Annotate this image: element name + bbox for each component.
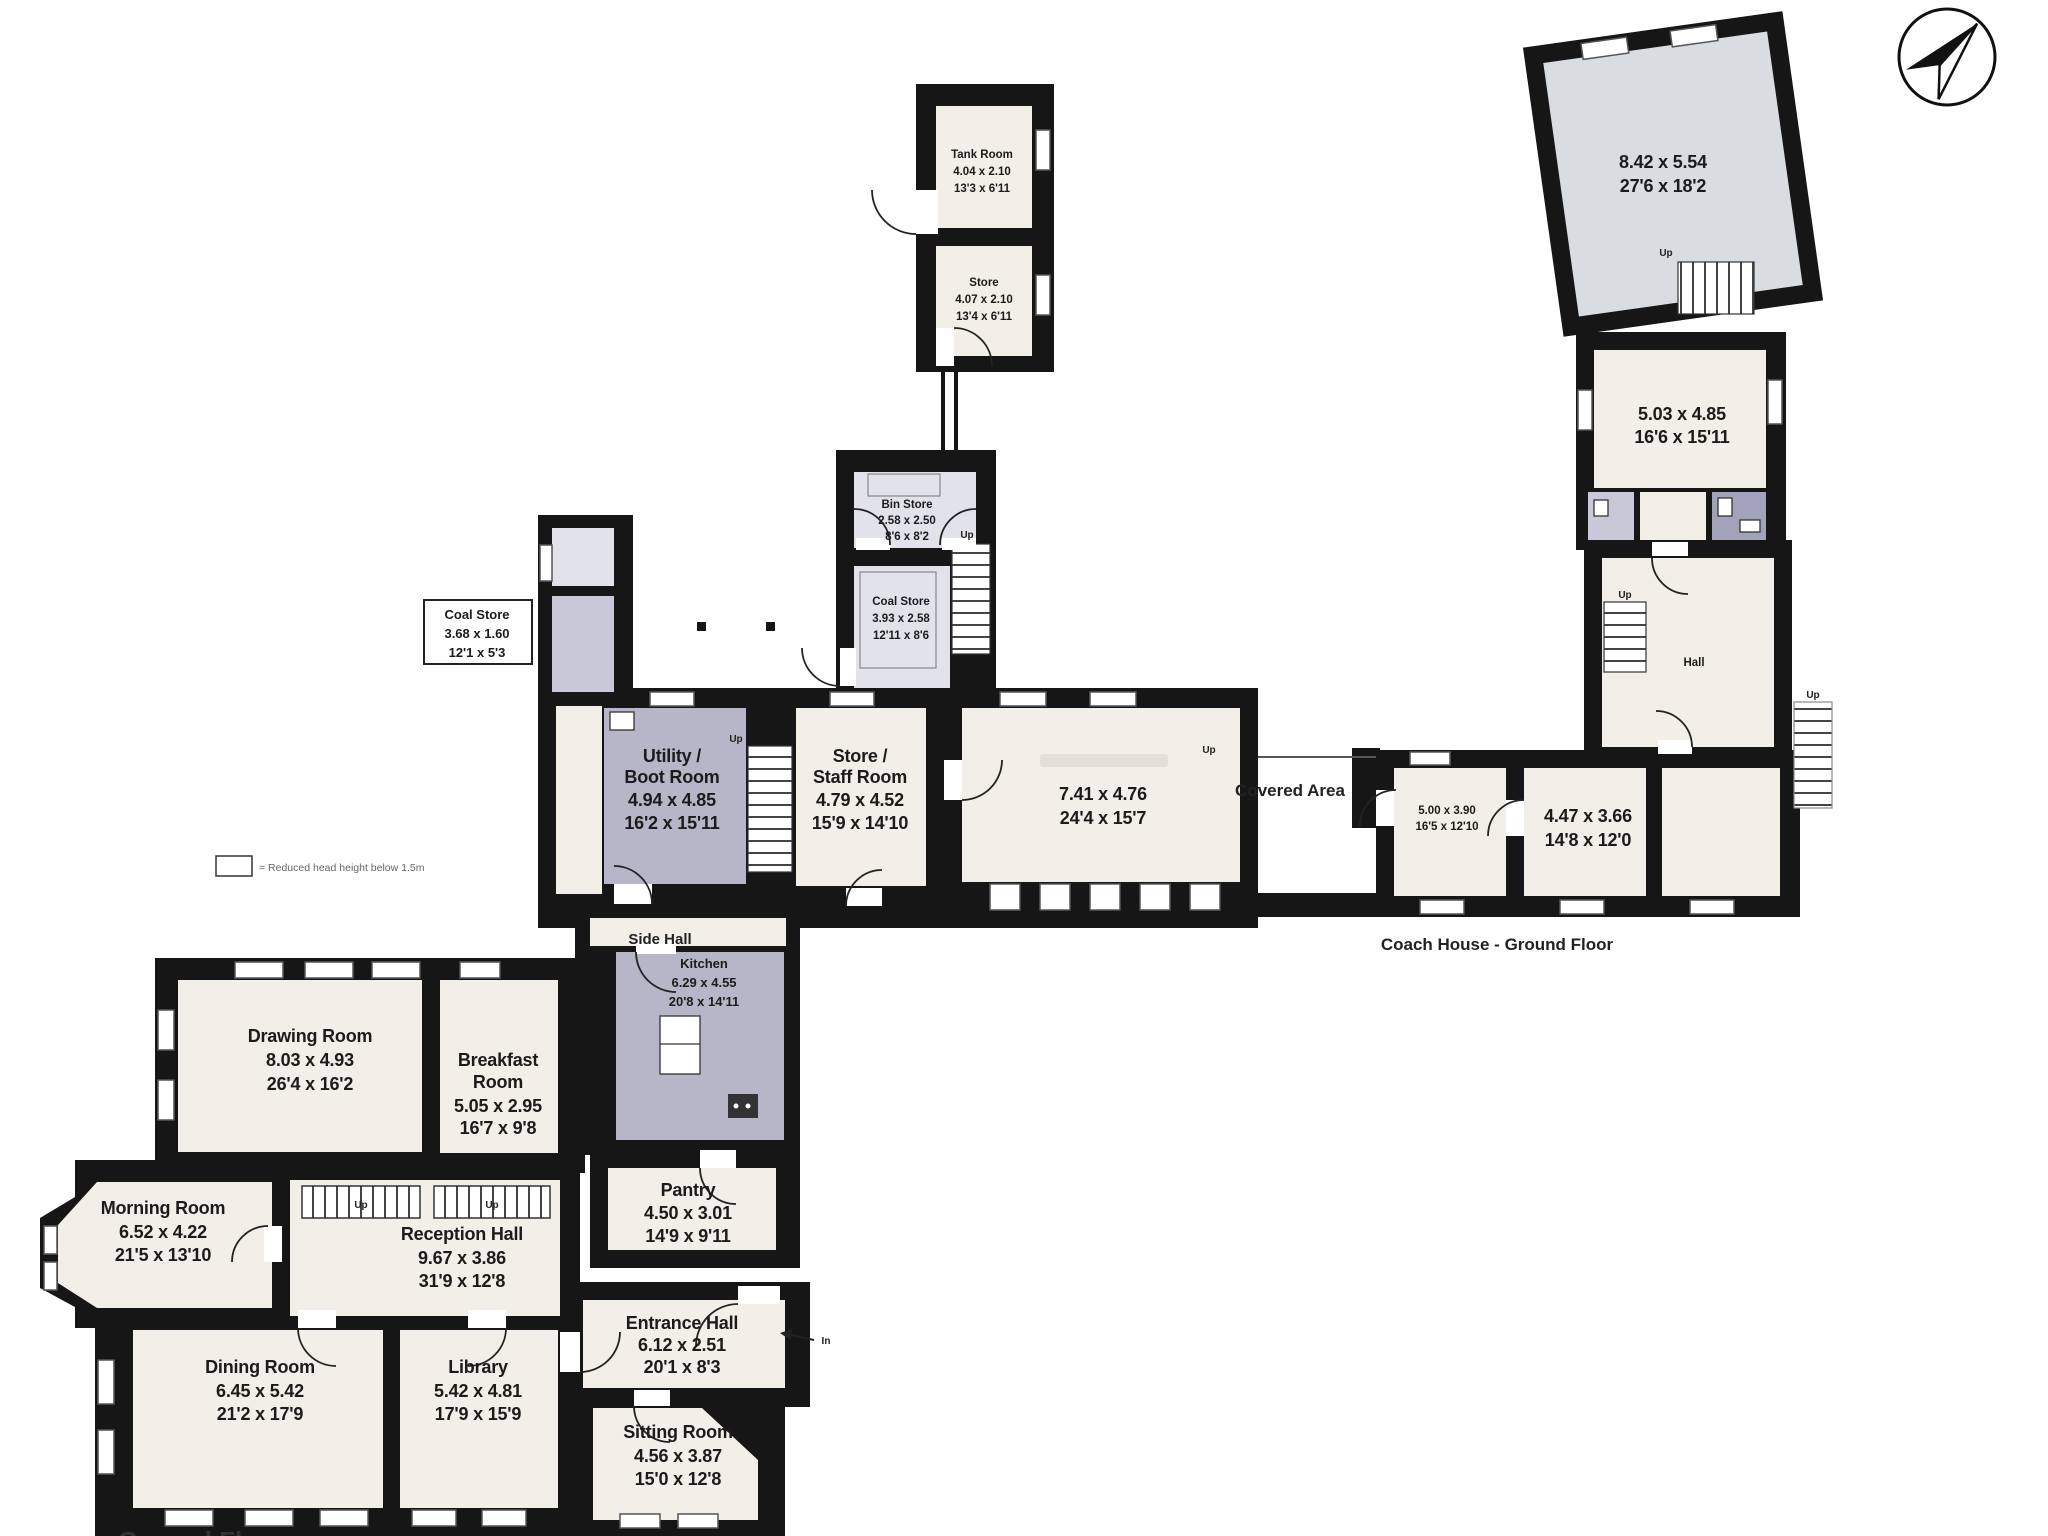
up-label-coal-stairs: Up	[960, 530, 973, 541]
room-dim-imperial: 21'5 x 13'10	[115, 1245, 211, 1265]
stairs-service	[748, 746, 792, 872]
room-dim-metric-coach-mid: 5.03 x 4.85	[1638, 404, 1726, 424]
room-dim-metric: 5.05 x 2.95	[454, 1096, 542, 1116]
compass-north-arrow	[1899, 9, 1995, 105]
door-coal-left	[802, 648, 856, 686]
ground-floor-caption: Ground Floor	[118, 1526, 284, 1536]
room-dim-metric: 4.79 x 4.52	[816, 790, 904, 810]
room-wing-wc	[552, 596, 614, 692]
room-dim-metric-coach-big: 8.42 x 5.54	[1619, 152, 1707, 172]
up-label-reception-stairs-right: Up	[485, 1200, 498, 1211]
room-wing-store	[552, 528, 614, 586]
wall-post-right	[766, 622, 775, 631]
room-label-reception-hall: Reception Hall	[401, 1224, 523, 1244]
room-dim-imperial: 21'2 x 17'9	[217, 1404, 304, 1424]
in-label: In	[822, 1336, 831, 1347]
room-label-store-staff-2: Staff Room	[813, 767, 907, 787]
stairs-coach-external	[1794, 702, 1832, 808]
room-coach-big	[1543, 32, 1802, 317]
room-label-utility-boot-2: Boot Room	[624, 767, 719, 787]
room-dim-metric: 6.45 x 5.42	[216, 1381, 304, 1401]
room-dim-imperial: 20'8 x 14'11	[669, 994, 740, 1009]
door-tank-room	[872, 190, 938, 234]
room-label-tank-store: Store	[969, 277, 998, 289]
room-label-pantry: Pantry	[661, 1180, 716, 1200]
room-coach-lobby	[1640, 492, 1706, 540]
room-dim-metric: 3.68 x 1.60	[444, 626, 509, 641]
room-label-coal-store: Coal Store	[872, 596, 930, 608]
stairs-coach-upper	[1678, 262, 1754, 314]
room-dim-imperial: 13'4 x 6'11	[956, 311, 1013, 323]
coach-house-caption: Coach House - Ground Floor	[1381, 935, 1614, 954]
kitchen-island	[660, 1016, 700, 1074]
kitchen-stove	[728, 1094, 758, 1118]
room-dim-imperial: 8'6 x 8'2	[885, 531, 929, 543]
room-dim-imperial: 15'9 x 14'10	[812, 813, 908, 833]
room-dim-metric: 4.50 x 3.01	[644, 1203, 732, 1223]
room-dim-metric: 9.67 x 3.86	[418, 1248, 506, 1268]
up-label-coach-upper-stairs: Up	[1659, 248, 1672, 259]
room-dim-imperial: 16'7 x 9'8	[460, 1118, 537, 1138]
room-dim-metric: 6.52 x 4.22	[119, 1222, 207, 1242]
room-dim-metric: 6.29 x 4.55	[671, 975, 736, 990]
hall-label: Hall	[1683, 657, 1704, 669]
room-dim-imperial-coach-mid: 16'6 x 15'11	[1634, 427, 1729, 447]
room-dim-metric: 8.03 x 4.93	[266, 1050, 354, 1070]
floorplan-canvas: Drawing Room 8.03 x 4.93 26'4 x 16'2 Bre…	[0, 0, 2048, 1536]
room-dim-imperial: 13'3 x 6'11	[954, 183, 1011, 195]
room-label-entrance-hall: Entrance Hall	[626, 1313, 738, 1333]
up-label-big-room: Up	[1202, 745, 1215, 756]
room-dim-metric: 3.93 x 2.58	[872, 613, 930, 625]
room-label-utility-boot: Utility /	[643, 746, 701, 766]
bathroom-sink	[1740, 520, 1760, 532]
room-label-breakfast-room: Breakfast	[458, 1050, 538, 1070]
room-label-bin-store: Bin Store	[881, 499, 932, 511]
covered-area-label: Covered Area	[1235, 781, 1345, 800]
room-dim-imperial-coach-big: 27'6 x 18'2	[1620, 176, 1707, 196]
room-label-sitting-room: Sitting Room	[623, 1422, 733, 1442]
legend-label: = Reduced head height below 1.5m	[259, 862, 425, 874]
room-dim-imperial: 15'0 x 12'8	[635, 1469, 722, 1489]
utility-sink	[610, 712, 634, 730]
room-dim-metric-coach-right: 4.47 x 3.66	[1544, 806, 1632, 826]
wall-post-left	[697, 622, 706, 631]
up-label-coach-hall-stairs: Up	[1618, 590, 1631, 601]
room-dim-metric: 4.04 x 2.10	[953, 166, 1011, 178]
room-coach-store	[1662, 768, 1780, 896]
up-label-reception-stairs-left: Up	[354, 1200, 367, 1211]
room-side-hall-upper	[556, 706, 602, 894]
room-dim-metric: 2.58 x 2.50	[878, 515, 936, 527]
up-label-coach-external-stairs: Up	[1806, 690, 1819, 701]
room-label-dining-room: Dining Room	[205, 1357, 315, 1377]
room-label-breakfast-room-2: Room	[473, 1072, 523, 1092]
room-label-kitchen: Kitchen	[680, 956, 728, 971]
room-dim-imperial: 31'9 x 12'8	[419, 1271, 506, 1291]
room-dim-imperial: 17'9 x 15'9	[435, 1404, 522, 1424]
erased-room-name-smudge	[1040, 754, 1168, 767]
room-dim-metric: 4.94 x 4.85	[628, 790, 716, 810]
room-dim-imperial-big-room: 24'4 x 15'7	[1060, 808, 1147, 828]
room-dim-metric: 4.56 x 3.87	[634, 1446, 722, 1466]
stairs-coal	[952, 544, 990, 654]
room-dim-imperial: 12'1 x 5'3	[449, 645, 506, 660]
room-dim-imperial: 16'2 x 15'11	[624, 813, 719, 833]
floorplan-page: Drawing Room 8.03 x 4.93 26'4 x 16'2 Bre…	[0, 0, 2048, 1536]
room-label-tank-room: Tank Room	[951, 149, 1013, 161]
room-dim-imperial: 26'4 x 16'2	[267, 1074, 354, 1094]
wc-toilet	[1594, 500, 1608, 516]
bathroom-toilet	[1718, 498, 1732, 516]
room-dim-imperial: 20'1 x 8'3	[644, 1357, 721, 1377]
room-label-coal-callout: Coal Store	[444, 607, 509, 622]
room-dim-imperial-coach-right: 14'8 x 12'0	[1545, 830, 1632, 850]
room-dim-metric-coach-small: 5.00 x 3.90	[1418, 805, 1476, 817]
room-dim-imperial: 12'11 x 8'6	[873, 630, 929, 642]
room-dim-metric: 5.42 x 4.81	[434, 1381, 522, 1401]
room-dim-metric-big-room: 7.41 x 4.76	[1059, 784, 1147, 804]
side-hall-label: Side Hall	[628, 931, 691, 948]
legend-swatch	[216, 856, 252, 876]
up-label-service-stairs: Up	[729, 734, 742, 745]
room-dim-metric: 6.12 x 2.51	[638, 1335, 726, 1355]
stairs-coach-hall	[1604, 602, 1646, 672]
room-label-morning-room: Morning Room	[101, 1198, 226, 1218]
room-dim-imperial-coach-small: 16'5 x 12'10	[1415, 821, 1478, 833]
room-label-library: Library	[448, 1357, 508, 1377]
room-dim-metric: 4.07 x 2.10	[955, 294, 1013, 306]
room-dim-imperial: 14'9 x 9'11	[645, 1226, 731, 1246]
room-label-drawing-room: Drawing Room	[248, 1026, 373, 1046]
room-label-store-staff: Store /	[833, 746, 888, 766]
